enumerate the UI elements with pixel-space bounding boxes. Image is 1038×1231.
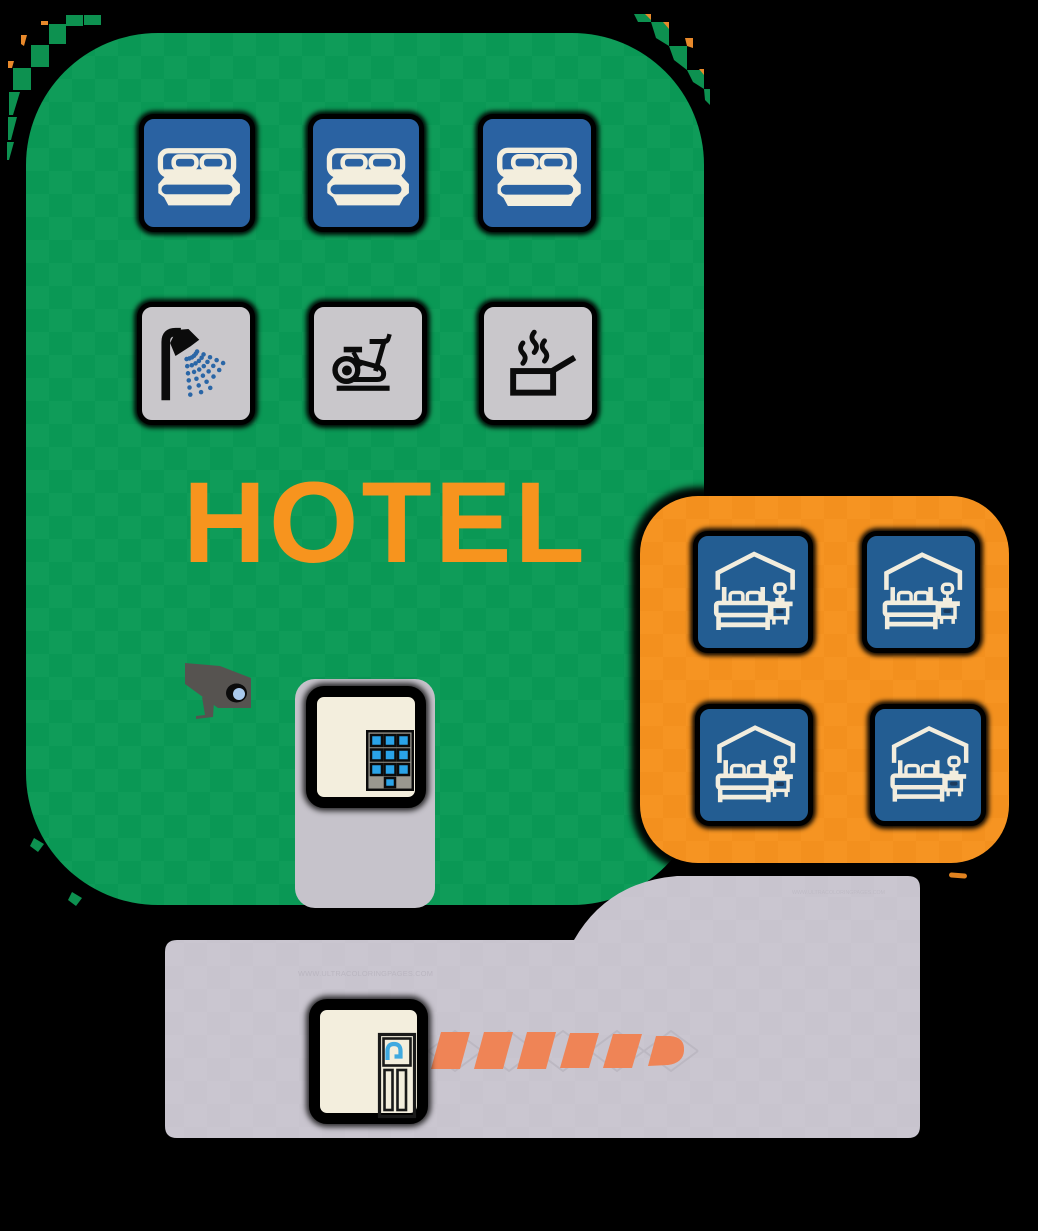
svg-text:WWW.ULTRACOLORINGPAGES.COM: WWW.ULTRACOLORINGPAGES.COM xyxy=(792,890,885,896)
svg-text:WWW.ULTRACOLORINGPAGES.COM: WWW.ULTRACOLORINGPAGES.COM xyxy=(298,969,433,978)
